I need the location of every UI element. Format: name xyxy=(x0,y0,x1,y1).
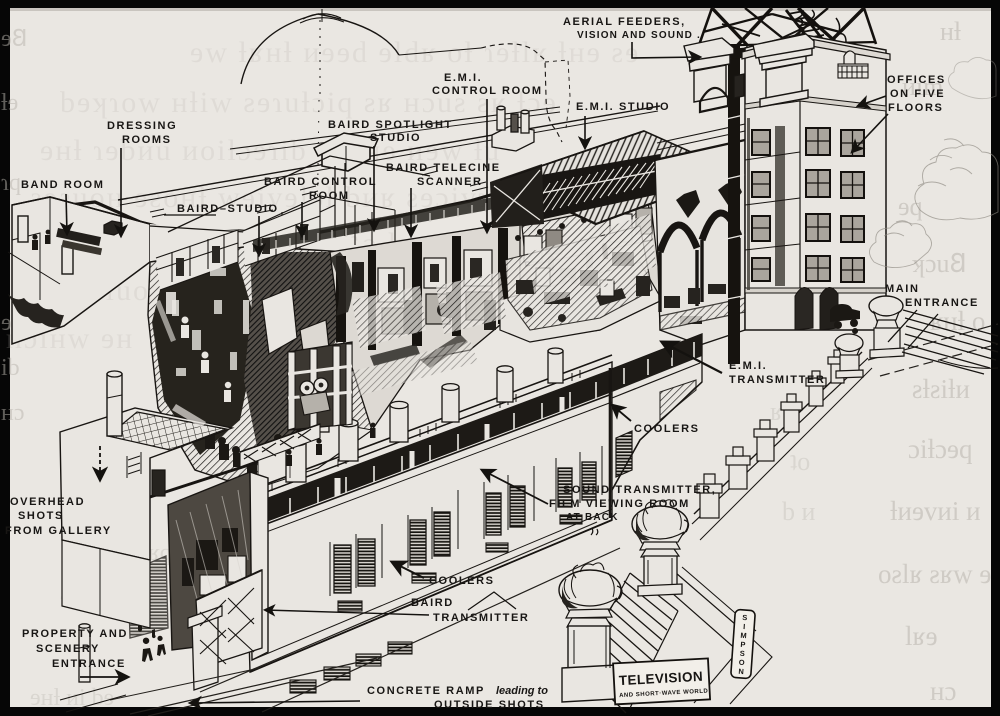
svg-text:ROOM: ROOM xyxy=(309,190,350,202)
svg-text:ON FIVE: ON FIVE xyxy=(890,88,945,100)
svg-text:S: S xyxy=(742,613,748,622)
svg-text:ROOMS: ROOMS xyxy=(122,134,172,146)
svg-text:AT BACK: AT BACK xyxy=(566,512,619,523)
svg-text:ɔiƚɔɘq: ɔiƚɔɘq xyxy=(908,434,973,464)
svg-text:BAIRD CONTROL: BAIRD CONTROL xyxy=(264,176,377,188)
svg-text:ƚɘ: ƚɘ xyxy=(1,90,18,116)
svg-text:PROPERTY AND: PROPERTY AND xyxy=(22,628,128,640)
svg-text:O: O xyxy=(738,658,745,667)
svg-text:ƚᴎɘvᴎi ᴎ: ƚᴎɘvᴎi ᴎ xyxy=(890,496,981,526)
svg-text:BAIRD SPOTLIGHT: BAIRD SPOTLIGHT xyxy=(328,119,453,131)
svg-text:ʜɔ: ʜɔ xyxy=(930,676,956,706)
svg-text:SHOTS: SHOTS xyxy=(18,510,64,522)
svg-text:BAIRD: BAIRD xyxy=(411,597,454,609)
svg-text:P: P xyxy=(740,640,746,649)
svg-text:M: M xyxy=(740,631,747,640)
svg-text:ENTRANCE: ENTRANCE xyxy=(905,297,979,309)
svg-text:BAIRD–STUDIO: BAIRD–STUDIO xyxy=(177,203,279,215)
svg-text:ɘq: ɘq xyxy=(898,192,923,221)
svg-text:AERIAL FEEDERS,: AERIAL FEEDERS, xyxy=(563,16,686,28)
svg-text:COOLERS: COOLERS xyxy=(634,423,700,435)
svg-text:FILM VIEWING ROOM: FILM VIEWING ROOM xyxy=(549,498,690,510)
svg-text:lʁɘ: lʁɘ xyxy=(905,621,938,651)
svg-text:BAIRD TELECINE: BAIRD TELECINE xyxy=(386,162,501,174)
svg-text:E.M.I.: E.M.I. xyxy=(444,72,482,84)
svg-text:OFFICES: OFFICES xyxy=(887,74,946,86)
svg-text:MAIN: MAIN xyxy=(885,283,920,295)
svg-text:S: S xyxy=(740,649,746,658)
svg-text:ɘw ƚʁʜƚ ᴎɘɘd ɘldʁ oƚ ɿɘƚlʁ ƚʜɘ: ɘw ƚʁʜƚ ᴎɘɘd ɘldʁ oƚ ɿɘƚlʁ ƚʜɘ ƨɘ xyxy=(190,36,640,69)
svg-text:ENTRANCE: ENTRANCE xyxy=(52,658,126,670)
svg-text:leading to: leading to xyxy=(496,685,548,697)
svg-text:TRANSMITTER: TRANSMITTER xyxy=(729,374,825,386)
svg-text:ƨƚƨiƚᴎ: ƨƚƨiƚᴎ xyxy=(912,374,970,404)
svg-text:CONTROL ROOM: CONTROL ROOM xyxy=(432,85,543,97)
svg-text:SCANNER: SCANNER xyxy=(417,176,483,188)
svg-text:TRANSMITTER: TRANSMITTER xyxy=(433,612,529,624)
svg-text:E.M.I.: E.M.I. xyxy=(729,360,767,372)
svg-text:oƨlʁ ƨʁw ɘ: oƨlʁ ƨʁw ɘ xyxy=(878,559,991,589)
svg-text:ʜƚ: ʜƚ xyxy=(940,17,961,46)
svg-text:ib: ib xyxy=(1,355,20,381)
svg-text:OVERHEAD: OVERHEAD xyxy=(10,496,85,508)
svg-text:DRESSING: DRESSING xyxy=(107,120,177,132)
svg-text:STUDIO: STUDIO xyxy=(370,132,421,144)
svg-text:ʇo: ʇo xyxy=(790,447,810,476)
svg-text:SCENERY: SCENERY xyxy=(36,643,100,655)
svg-text:N: N xyxy=(738,667,744,676)
svg-text:BAND ROOM: BAND ROOM xyxy=(21,179,104,191)
svg-text:ʁʜƚ o: ʁʜƚ o xyxy=(930,306,985,336)
svg-text:ʜɔ: ʜɔ xyxy=(1,400,25,426)
svg-text:ʞɔu𐐒: ʞɔu𐐒 xyxy=(912,249,967,278)
svg-text:FROM GALLERY: FROM GALLERY xyxy=(5,525,112,537)
svg-text:CONCRETE RAMP: CONCRETE RAMP xyxy=(367,685,485,697)
svg-text:b ᴎ: b ᴎ xyxy=(782,497,816,526)
svg-text:FLOORS: FLOORS xyxy=(888,102,943,114)
svg-text:SOUND TRANSMITTER,: SOUND TRANSMITTER, xyxy=(563,484,716,496)
svg-text:VISION AND SOUND .: VISION AND SOUND . xyxy=(577,30,701,41)
svg-text:ɿq: ɿq xyxy=(1,170,21,196)
svg-text:OUTSIDE SHOTS: OUTSIDE SHOTS xyxy=(434,699,545,711)
svg-text:ɘ𐐒: ɘ𐐒 xyxy=(1,26,28,52)
svg-text:E.M.I. STUDIO: E.M.I. STUDIO xyxy=(576,101,670,113)
svg-text:COOLERS: COOLERS xyxy=(429,575,495,587)
